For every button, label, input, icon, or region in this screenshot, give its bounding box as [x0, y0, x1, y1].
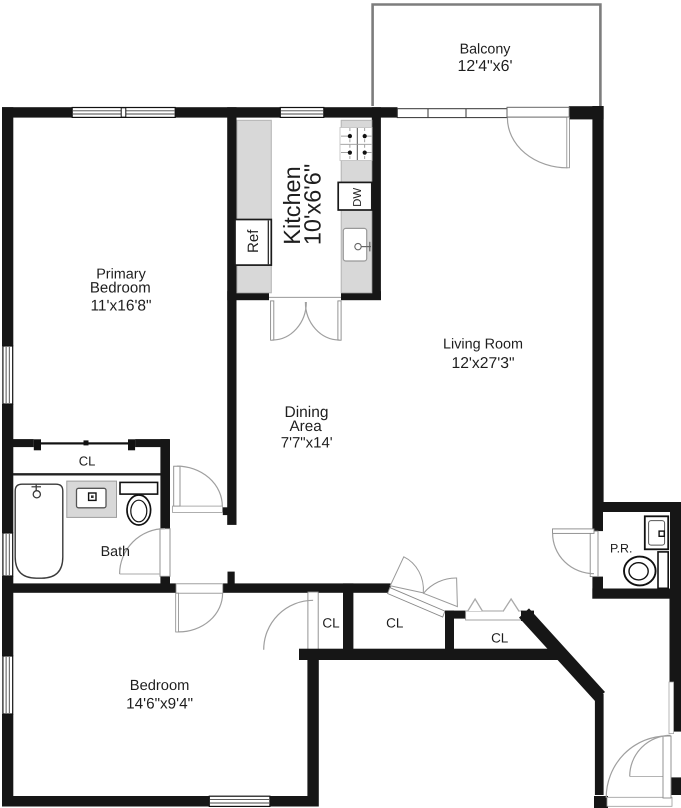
svg-text:CL: CL: [386, 616, 404, 631]
svg-text:P.R.: P.R.: [610, 542, 633, 556]
svg-text:DW: DW: [352, 188, 364, 207]
svg-text:Bedroom: Bedroom: [90, 279, 151, 296]
svg-text:Bath: Bath: [101, 544, 130, 560]
svg-text:Balcony: Balcony: [460, 41, 512, 57]
svg-text:Living Room: Living Room: [443, 337, 523, 353]
svg-text:CL: CL: [79, 454, 96, 469]
svg-text:Ref: Ref: [245, 229, 262, 253]
svg-text:14'6"x9'4": 14'6"x9'4": [126, 695, 193, 712]
svg-text:10'x6'6": 10'x6'6": [300, 164, 326, 245]
svg-text:Area: Area: [289, 418, 322, 435]
svg-text:CL: CL: [322, 616, 340, 631]
svg-text:CL: CL: [491, 630, 509, 645]
svg-text:7'7"x14': 7'7"x14': [281, 434, 333, 451]
svg-text:Bedroom: Bedroom: [130, 678, 190, 694]
svg-text:11'x16'8": 11'x16'8": [90, 298, 151, 315]
svg-text:12'x27'3": 12'x27'3": [451, 355, 514, 372]
svg-text:12'4"x6': 12'4"x6': [457, 58, 512, 75]
